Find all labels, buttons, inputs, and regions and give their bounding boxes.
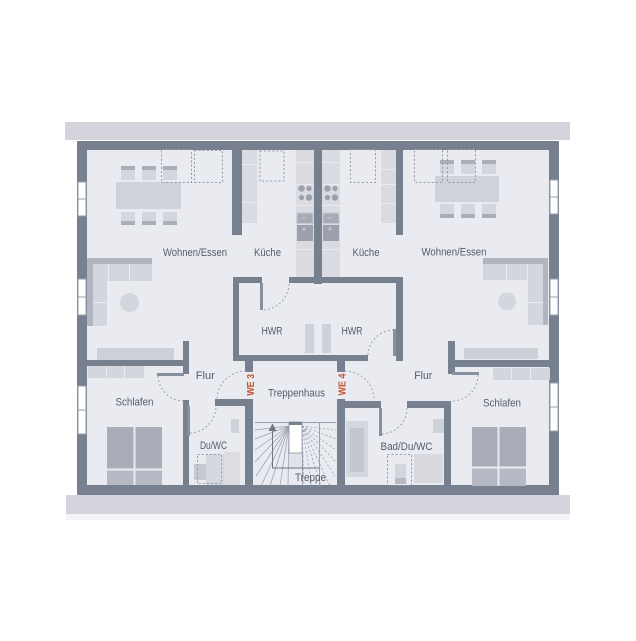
svg-text:Schlafen: Schlafen [116, 396, 154, 408]
svg-text:Wohnen/Essen: Wohnen/Essen [422, 247, 487, 259]
svg-text:Wohnen/Essen: Wohnen/Essen [163, 247, 227, 259]
svg-text:Flur: Flur [414, 370, 432, 382]
svg-text:Flur: Flur [196, 370, 215, 382]
svg-text:WE 3: WE 3 [246, 373, 257, 395]
svg-text:HWR: HWR [262, 325, 283, 337]
svg-text:HWR: HWR [342, 325, 363, 337]
svg-text:Treppe: Treppe [295, 472, 326, 484]
svg-text:WE 4: WE 4 [338, 373, 349, 395]
svg-text:Du/WC: Du/WC [200, 440, 227, 452]
svg-text:Küche: Küche [353, 247, 380, 259]
svg-text:Bad/Du/WC: Bad/Du/WC [381, 441, 433, 453]
svg-text:Küche: Küche [254, 247, 281, 259]
svg-text:Treppenhaus: Treppenhaus [268, 388, 325, 400]
svg-text:Schlafen: Schlafen [483, 397, 521, 409]
